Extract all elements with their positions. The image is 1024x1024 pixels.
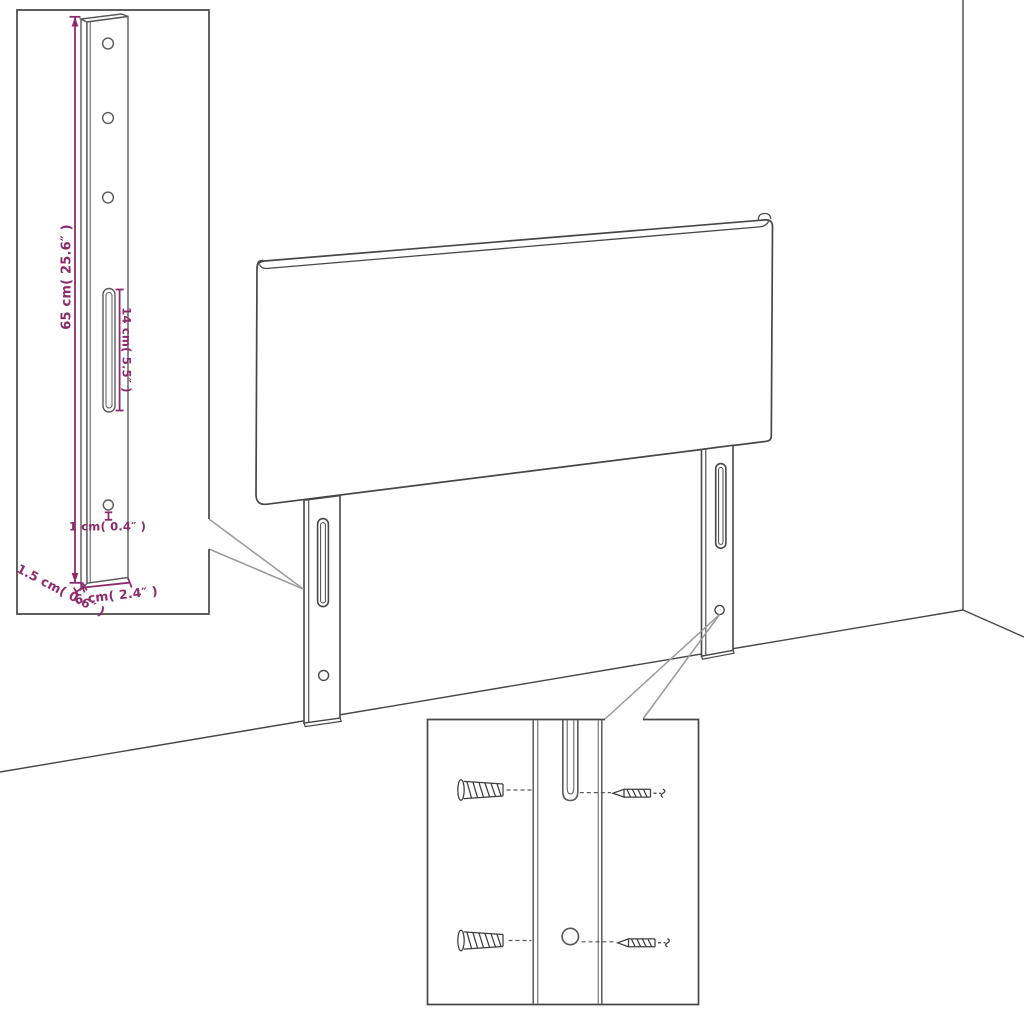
assembly-diagram: 65 cm( 25.6″ ) 14 cm( 5.5″ ) 1 cm( 0.4″ …: [0, 0, 1024, 1024]
label-hole-offset: 1 cm( 0.4″ ): [69, 520, 146, 534]
diagram-canvas: 65 cm( 25.6″ ) 14 cm( 5.5″ ) 1 cm( 0.4″ …: [0, 0, 1024, 1024]
bracket-drawing: [81, 14, 128, 590]
hardware-inset: [428, 720, 699, 1005]
bracket-side-face: [81, 19, 87, 590]
hardware-callout-right: [643, 615, 720, 720]
floor-line-right: [963, 610, 1024, 637]
headboard-panel: [256, 213, 773, 504]
headboard-left-leg: [304, 496, 341, 727]
bracket-front-face: [87, 17, 128, 584]
headboard-top-right-curl: [758, 213, 770, 219]
bracket-callout-upper: [209, 519, 304, 589]
label-bracket-height: 65 cm( 25.6″ ): [60, 224, 75, 330]
label-slot-length: 14 cm( 5.5″ ): [120, 307, 134, 392]
bracket-inset: 65 cm( 25.6″ ) 14 cm( 5.5″ ) 1 cm( 0.4″ …: [14, 10, 209, 619]
bracket-callout-lines: [209, 519, 304, 589]
left-leg-face: [304, 496, 340, 724]
